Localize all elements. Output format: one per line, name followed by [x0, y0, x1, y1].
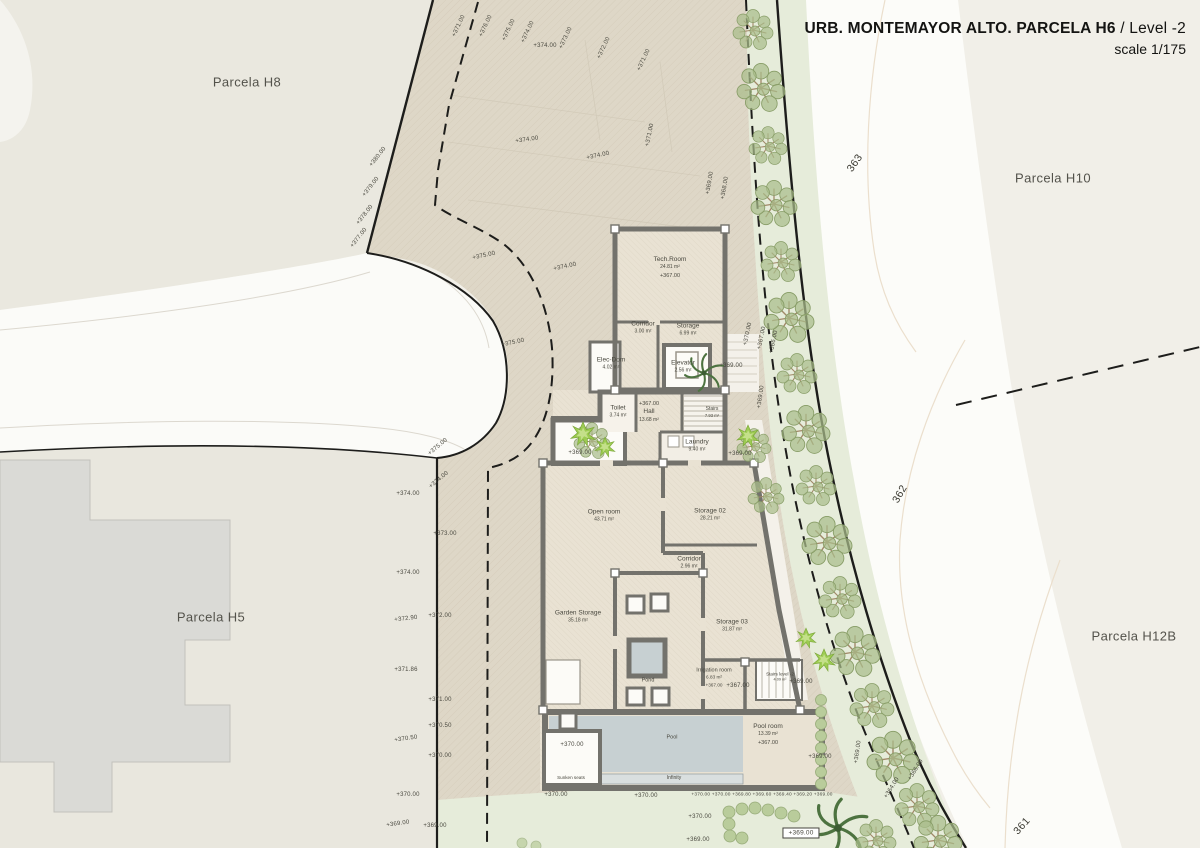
room-name: Laundry: [685, 439, 709, 447]
room-area: 28.21 m²: [694, 516, 726, 523]
title-line: URB. MONTEMAYOR ALTO. PARCELA H6 / Level…: [804, 20, 1186, 38]
room-elevation: +367.00: [639, 401, 659, 408]
room-label-open-room: Open room43.71 m²: [588, 509, 621, 524]
spot-elevation: +369.00: [808, 754, 831, 760]
room-area: 3.74 m²: [610, 413, 627, 420]
spot-elevation: +370.00: [743, 322, 754, 346]
room-area: 2.96 m²: [677, 564, 700, 571]
room-name: Hall: [639, 408, 659, 416]
parcel-label-h10: Parcela H10: [1015, 171, 1091, 186]
spot-elevation: +366.00: [769, 330, 780, 354]
room-area: 35.18 m²: [555, 618, 601, 625]
level-label: Level -2: [1129, 20, 1186, 37]
spot-elevation: +370.00: [688, 814, 711, 820]
spot-elevation: +373.00: [433, 531, 456, 537]
room-elevation: +367.00: [696, 683, 731, 689]
spot-elevation: +374.00: [533, 43, 556, 49]
room-name: Sunken seats: [557, 775, 585, 781]
room-label-pond: Pond: [642, 677, 655, 684]
room-label-tech-room: Tech.Room24.81 m²+367.00: [654, 256, 687, 280]
scale-label: scale 1/175: [804, 41, 1186, 57]
spot-elevation: +370.00: [396, 792, 419, 798]
spot-elevation: +374.00: [553, 262, 577, 273]
spot-elevation: +377.00: [349, 227, 368, 249]
room-name: Storage 02: [694, 508, 726, 516]
drawing-title: URB. MONTEMAYOR ALTO. PARCELA H6 / Level…: [804, 20, 1186, 57]
room-label-sunken-seats: Sunken seats: [557, 775, 585, 781]
spot-elevation: +375.00: [501, 338, 525, 349]
spot-elevation: +370.50: [428, 723, 451, 729]
labels-layer: URB. MONTEMAYOR ALTO. PARCELA H6 / Level…: [0, 0, 1200, 848]
spot-elevation: +374.00: [515, 135, 539, 144]
spot-elevation: +370.00: [634, 793, 657, 799]
room-name: Storage 03: [716, 619, 748, 627]
spot-elevation: +379.00: [361, 176, 380, 198]
spot-elevation: +374.00: [520, 20, 535, 44]
room-area: 9.40 m²: [685, 447, 709, 454]
room-label-stairs: Stairs7.93 m²: [705, 406, 719, 418]
project-title: URB. MONTEMAYOR ALTO. PARCELA H6: [804, 20, 1115, 37]
spot-elevation: +369.00: [782, 828, 819, 839]
room-name: Stairs: [705, 406, 719, 413]
spot-elevation: +369.00: [719, 363, 742, 369]
spot-elevation: +374.00: [586, 151, 610, 162]
spot-elevation: +366.00: [907, 759, 924, 782]
spot-elevation: +369.00: [705, 171, 715, 195]
spot-elevation: +369.00: [686, 837, 709, 843]
room-label-infinity: Infinity: [667, 775, 681, 782]
title-separator: /: [1116, 20, 1130, 37]
room-name: Elevator: [671, 360, 695, 368]
contour-label: 361: [1011, 815, 1033, 837]
room-label-elec-dom: Elec-Dom4.02 m²: [597, 357, 626, 372]
room-name: Pool: [666, 734, 677, 741]
room-area: 2.56 m²: [671, 368, 695, 375]
spot-elevation: +369.00: [386, 819, 410, 828]
room-name: Tech.Room: [654, 256, 687, 264]
spot-elevation: +369.00: [568, 450, 591, 456]
parcel-label-h8: Parcela H8: [213, 75, 281, 90]
room-name: Open room: [588, 509, 621, 517]
spot-elevation: +370.00: [560, 742, 583, 748]
room-label-stairs-level-2: Stairs level -24.09 m²: [766, 672, 794, 683]
spot-elevation: +367.00: [757, 326, 768, 350]
room-elevation: +367.00: [654, 273, 687, 280]
room-label-elevator: Elevator2.56 m²: [671, 360, 695, 375]
spot-elevation: +371.86: [394, 667, 417, 673]
spot-elevation: +370.00: [428, 753, 451, 759]
room-name: Irrigation room: [696, 667, 731, 674]
spot-elevation: +370.50: [394, 734, 418, 743]
spot-elevation: +372.00: [596, 36, 611, 60]
room-label-storage-1: Storage6.99 m²: [677, 323, 700, 338]
spot-elevation: +364.00: [883, 777, 900, 800]
room-label-storage-03: Storage 0331.87 m²: [716, 619, 748, 634]
site-plan-canvas: URB. MONTEMAYOR ALTO. PARCELA H6 / Level…: [0, 0, 1200, 848]
room-elevation: +367.00: [753, 740, 783, 747]
room-area: 43.71 m²: [588, 517, 621, 524]
room-name: Garden Storage: [555, 610, 601, 618]
room-area: 24.81 m²: [654, 264, 687, 271]
room-name: Toilet: [610, 405, 627, 413]
room-name: Pool room: [753, 723, 783, 731]
spot-elevation: +372.90: [394, 615, 418, 623]
room-label-pool: Pool: [666, 734, 677, 741]
contour-label: 363: [845, 152, 866, 174]
spot-elevation: +375.00: [472, 251, 496, 262]
room-area: 6.99 m²: [677, 331, 700, 338]
parcel-label-h5: Parcela H5: [177, 610, 245, 625]
room-label-toilet: Toilet3.74 m²: [610, 405, 627, 420]
spot-elevation: +375.00: [427, 437, 449, 457]
room-area: 13.39 m²: [753, 731, 783, 738]
spot-elevation: +370.00: [544, 792, 567, 798]
spot-elevation: +371.00: [428, 697, 451, 703]
spot-elevation: +371.00: [451, 14, 466, 38]
spot-elevation: +368.00: [720, 176, 730, 200]
room-label-laundry: Laundry9.40 m²: [685, 439, 709, 454]
spot-elevation: +369.00: [853, 740, 862, 764]
room-name: Corridor: [631, 321, 654, 329]
spot-elevation: +375.00: [501, 18, 516, 42]
room-label-hall: +367.00Hall13.68 m²: [639, 399, 659, 423]
spot-elevation: +378.00: [355, 204, 374, 226]
room-area: 6.83 m²: [696, 674, 731, 680]
room-name: Corridor: [677, 556, 700, 564]
room-label-pool-room: Pool room13.39 m²+367.00: [753, 723, 783, 747]
spot-elevation: +373.00: [558, 26, 573, 50]
room-label-corridor-2: Corridor2.96 m²: [677, 556, 700, 571]
spot-elevation: +369.00: [756, 385, 765, 409]
spot-elevation: +380.00: [368, 146, 387, 168]
spot-elevation: +371.00: [645, 123, 656, 147]
spot-elevation: +374.00: [428, 470, 450, 490]
room-area: 7.93 m²: [705, 413, 719, 418]
room-area: 4.02 m²: [597, 365, 626, 372]
room-area: 31.87 m²: [716, 627, 748, 634]
spot-elevation: +372.00: [428, 613, 451, 619]
spot-elevation: +369.00: [423, 823, 446, 829]
spot-elevation: +376.00: [478, 14, 493, 38]
spot-elevation: +371.00: [636, 48, 651, 72]
room-area: 4.09 m²: [766, 678, 794, 683]
spot-elevation: +374.00: [396, 570, 419, 576]
room-label-garden-storage: Garden Storage35.18 m²: [555, 610, 601, 625]
parcel-label-h12b: Parcela H12B: [1091, 629, 1176, 644]
room-label-irrigation-room: Irrigation room6.83 m²+367.00: [696, 667, 731, 688]
contour-label: 362: [890, 483, 910, 505]
room-name: Infinity: [667, 775, 681, 782]
spot-elevation: +369.00: [728, 451, 751, 457]
room-name: Storage: [677, 323, 700, 331]
room-name: Elec-Dom: [597, 357, 626, 365]
room-label-storage-02: Storage 0228.21 m²: [694, 508, 726, 523]
room-area: 3.00 m²: [631, 329, 654, 336]
room-name: Pond: [642, 677, 655, 684]
spot-elevation: +370.00 +370.00 +369.80 +369.60 +369.40 …: [691, 793, 832, 798]
spot-elevation: +374.00: [396, 491, 419, 497]
room-label-corridor-1: Corridor3.00 m²: [631, 321, 654, 336]
room-area: 13.68 m²: [639, 417, 659, 424]
